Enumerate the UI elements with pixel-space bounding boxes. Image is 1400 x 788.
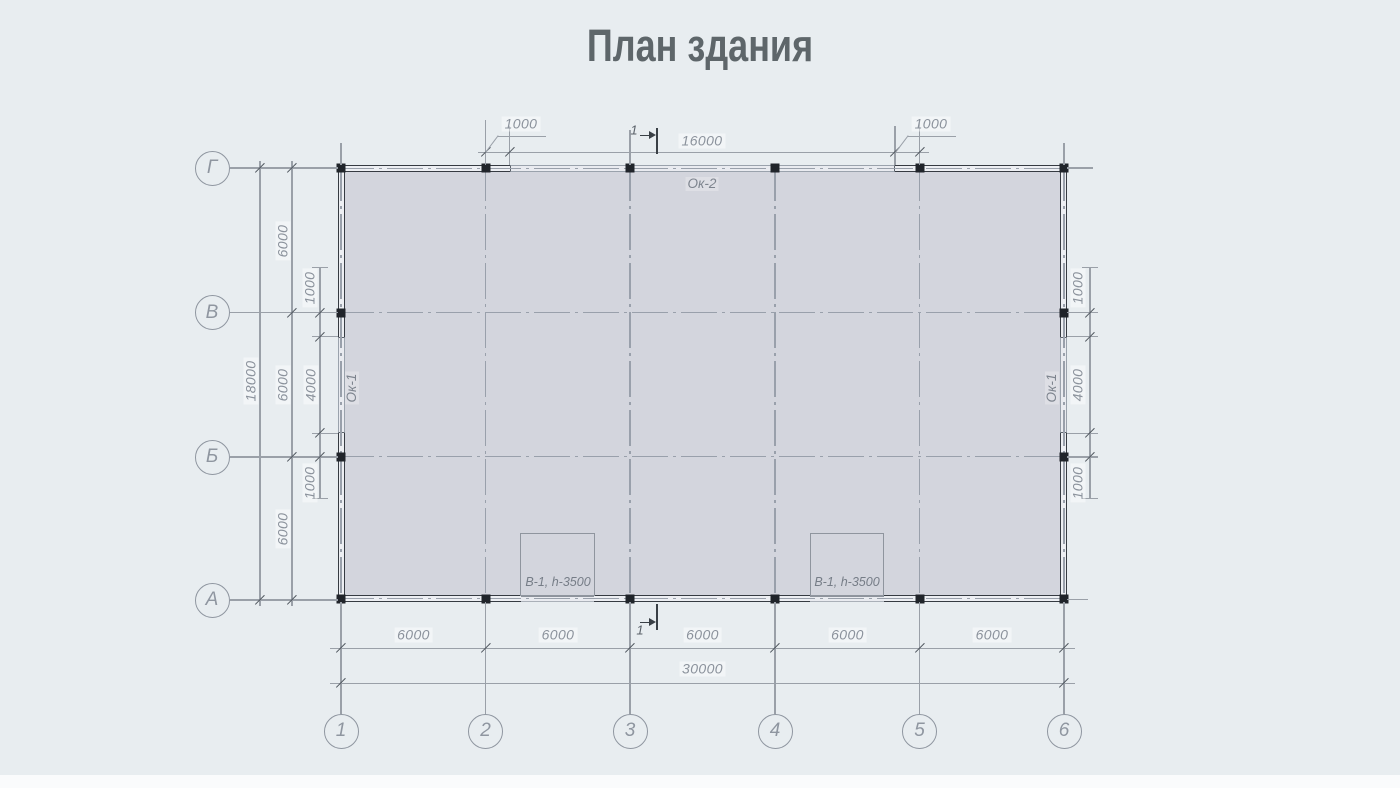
dim-right-window-1: 1000: [1071, 269, 1086, 308]
axis-line-row-a: [230, 599, 339, 600]
dim-left-window-2: 4000: [303, 366, 318, 405]
extension-line: [485, 120, 486, 165]
extension-line: [1067, 312, 1098, 313]
centerline-col-6: [1063, 165, 1064, 602]
dim-line-bottom-spans: [330, 648, 1075, 649]
dim-left-window-3: 1000: [302, 464, 317, 503]
dim-line-top: [478, 152, 929, 153]
window-right-label: Ок-1: [1045, 372, 1059, 405]
dim-top-offset-left: 1000: [502, 117, 541, 132]
dim-top-window: 16000: [679, 134, 726, 149]
axis-bubble-col-4: 4: [758, 714, 793, 749]
dim-line-left-spans: [291, 161, 292, 606]
extension-line: [1067, 456, 1098, 457]
section-arrow-icon: [649, 131, 656, 139]
bottom-strip: [0, 775, 1400, 788]
axis-line-col-4: [774, 602, 775, 714]
extension-line: [312, 336, 339, 337]
extension-line: [340, 143, 341, 165]
dim-left-total: 18000: [244, 358, 259, 405]
centerline-col-1: [340, 165, 341, 602]
dim-top-offset-right: 1000: [912, 117, 951, 132]
extension-line: [1067, 336, 1098, 337]
column: [771, 164, 780, 173]
axis-line-row-b: [230, 456, 339, 457]
extension-line: [312, 433, 339, 434]
dim-bottom-span-4: 6000: [828, 628, 867, 643]
gate-right-label: В-1, h-3500: [814, 575, 879, 589]
column: [626, 164, 635, 173]
dim-left-span-3: 6000: [276, 509, 291, 548]
axis-line-col-1: [340, 602, 341, 714]
window-left-label: Ок-1: [345, 372, 359, 405]
dim-line-left-window: [319, 267, 320, 499]
axis-bubble-row-v: В: [195, 295, 230, 330]
centerline-col-2: [485, 165, 486, 602]
axis-bubble-col-5: 5: [902, 714, 937, 749]
page-title: План здания: [140, 22, 1260, 70]
centerline-col-3: [629, 165, 630, 602]
axis-bubble-col-1: 1: [324, 714, 359, 749]
dim-left-window-1: 1000: [302, 269, 317, 308]
leader-line: [485, 135, 499, 152]
extension-line: [894, 126, 895, 165]
extension-line: [1067, 433, 1098, 434]
axis-bubble-row-a: А: [195, 583, 230, 618]
centerline-row-b: [338, 456, 1067, 457]
dim-bottom-total: 30000: [679, 662, 726, 677]
section-number-bottom: 1: [636, 622, 643, 637]
axis-line-col-2: [485, 602, 486, 714]
drawing-canvas: План здания В-1, h-3500 В-1, h-3500 Ок-2…: [0, 0, 1400, 788]
dim-bottom-span-1: 6000: [394, 628, 433, 643]
building-floor: [338, 165, 1067, 602]
section-arrow-icon: [649, 618, 656, 626]
dim-bottom-span-3: 6000: [683, 628, 722, 643]
centerline-col-5: [919, 165, 920, 602]
axis-line-col-5: [919, 602, 920, 714]
axis-line-col-3: [629, 602, 630, 714]
dim-left-span-2: 6000: [276, 366, 291, 405]
dim-bottom-span-5: 6000: [973, 628, 1012, 643]
axis-bubble-col-6: 6: [1047, 714, 1082, 749]
dim-bottom-span-2: 6000: [539, 628, 578, 643]
axis-bubble-col-2: 2: [468, 714, 503, 749]
column: [915, 164, 924, 173]
dim-right-window-2: 4000: [1071, 366, 1086, 405]
axis-bubble-row-g: Г: [195, 151, 230, 186]
centerline-row-a: [338, 598, 1067, 599]
dim-line-left-total: [259, 161, 260, 606]
extension-line: [509, 126, 510, 165]
axis-bubble-col-3: 3: [613, 714, 648, 749]
extension-line: [1067, 599, 1088, 600]
leader-line: [895, 135, 909, 152]
leader-line: [498, 136, 546, 137]
gate-left-label: В-1, h-3500: [525, 575, 590, 589]
centerline-row-g: [338, 168, 1067, 169]
extension-line: [1067, 167, 1093, 168]
dim-right-window-3: 1000: [1071, 464, 1086, 503]
axis-bubble-row-b: Б: [195, 440, 230, 475]
dim-line-right-window: [1089, 267, 1090, 499]
dim-line-bottom-total: [330, 683, 1075, 684]
axis-line-col-6: [1063, 602, 1064, 714]
centerline-row-v: [338, 312, 1067, 313]
leader-line: [908, 136, 956, 137]
section-number-top: 1: [630, 123, 637, 138]
column: [481, 164, 490, 173]
centerline-col-4: [774, 165, 775, 602]
window-top-label: Ок-2: [686, 177, 719, 191]
dim-left-span-1: 6000: [276, 221, 291, 260]
extension-line: [1063, 143, 1064, 165]
axis-line-row-g: [230, 167, 339, 168]
